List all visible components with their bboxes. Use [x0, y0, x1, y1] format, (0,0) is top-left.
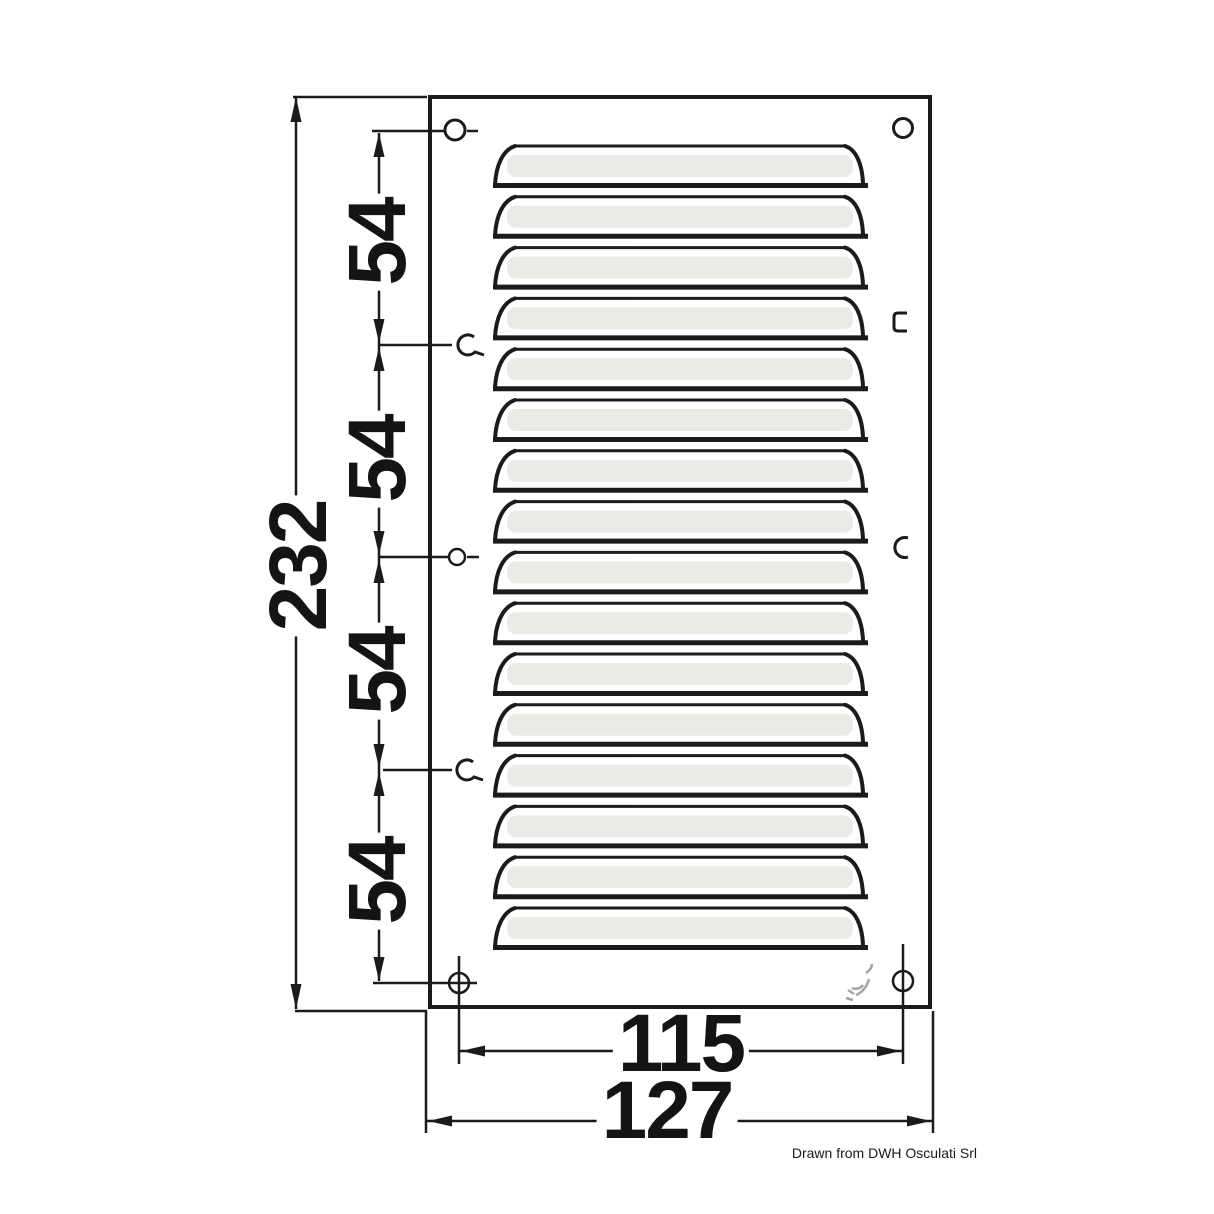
- arrow-down-icon: [374, 957, 385, 981]
- arrow-up-icon: [291, 97, 302, 122]
- arrow-right-icon: [907, 1116, 931, 1127]
- dim-label-overall-width: 127: [597, 1079, 738, 1143]
- dim-label-hole-spacing-4: 54: [346, 832, 410, 929]
- dim-label-hole-spacing-3: 54: [346, 622, 410, 719]
- screw-hole-top-right: [894, 119, 913, 138]
- arrow-down-icon: [374, 744, 385, 768]
- arrow-down-icon: [374, 531, 385, 555]
- dim-label-hole-spacing-1: 54: [346, 193, 410, 290]
- credit-text: Drawn from DWH Osculati Srl: [792, 1145, 977, 1161]
- arrow-up-icon: [374, 559, 385, 583]
- screw-hole-mid-left-2: [449, 549, 465, 565]
- arrow-down-icon: [374, 319, 385, 343]
- dim-label-overall-height: 232: [267, 496, 331, 637]
- arrow-left-icon: [461, 1046, 485, 1057]
- arrow-left-icon: [428, 1116, 452, 1127]
- arrow-up-icon: [374, 133, 385, 157]
- screw-hole-top-left: [445, 120, 465, 140]
- arrow-down-icon: [291, 984, 302, 1009]
- arrow-up-icon: [374, 772, 385, 796]
- arrow-up-icon: [374, 347, 385, 371]
- dim-label-hole-spacing-2: 54: [346, 410, 410, 507]
- arrow-right-icon: [877, 1046, 901, 1057]
- drawing-overlay: [0, 0, 1214, 1214]
- drawing-canvas: 232 54 54 54 54 115 127 Drawn from DWH O…: [0, 0, 1214, 1214]
